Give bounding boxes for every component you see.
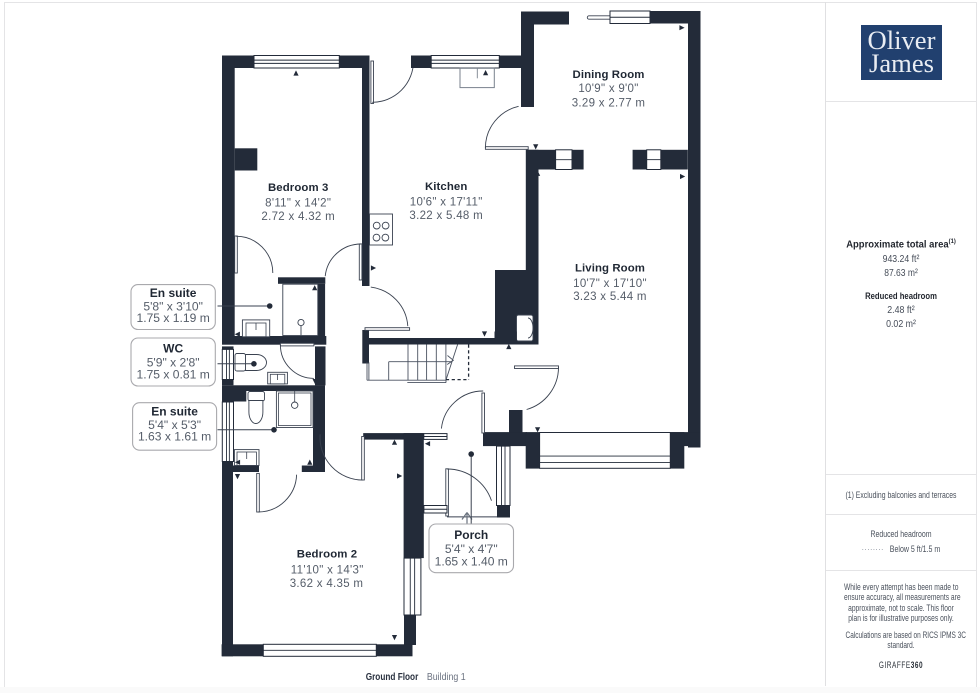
svg-text:10'7" x 17'10": 10'7" x 17'10" bbox=[573, 278, 647, 290]
svg-text:3.62 x 4.35 m: 3.62 x 4.35 m bbox=[290, 578, 364, 590]
svg-text:1.75 x 0.81 m: 1.75 x 0.81 m bbox=[137, 367, 210, 381]
svg-text:WC: WC bbox=[163, 342, 183, 356]
svg-text:1.63 x 1.61 m: 1.63 x 1.61 m bbox=[138, 430, 211, 444]
svg-text:Kitchen: Kitchen bbox=[425, 181, 467, 193]
svg-text:2.72 x 4.32 m: 2.72 x 4.32 m bbox=[261, 211, 335, 223]
svg-text:Porch: Porch bbox=[454, 528, 488, 542]
svg-text:1.65 x 1.40 m: 1.65 x 1.40 m bbox=[435, 555, 508, 569]
svg-text:3.29 x 2.77 m: 3.29 x 2.77 m bbox=[572, 98, 646, 110]
svg-text:En suite: En suite bbox=[150, 286, 197, 300]
svg-text:Living Room: Living Room bbox=[575, 263, 645, 275]
svg-text:3.22 x 5.48 m: 3.22 x 5.48 m bbox=[409, 210, 483, 222]
svg-text:Bedroom 3: Bedroom 3 bbox=[268, 182, 328, 194]
svg-text:8'11" x 14'2": 8'11" x 14'2" bbox=[265, 197, 331, 209]
svg-text:10'9" x 9'0": 10'9" x 9'0" bbox=[578, 83, 638, 95]
svg-text:1.75 x 1.19 m: 1.75 x 1.19 m bbox=[137, 311, 210, 325]
svg-text:En suite: En suite bbox=[151, 405, 198, 419]
svg-text:Bedroom 2: Bedroom 2 bbox=[297, 549, 357, 561]
svg-text:Dining Room: Dining Room bbox=[573, 69, 645, 81]
svg-text:10'6" x 17'11": 10'6" x 17'11" bbox=[410, 197, 483, 209]
svg-text:11'10" x 14'3": 11'10" x 14'3" bbox=[291, 564, 364, 576]
svg-text:3.23 x 5.44 m: 3.23 x 5.44 m bbox=[573, 291, 647, 303]
